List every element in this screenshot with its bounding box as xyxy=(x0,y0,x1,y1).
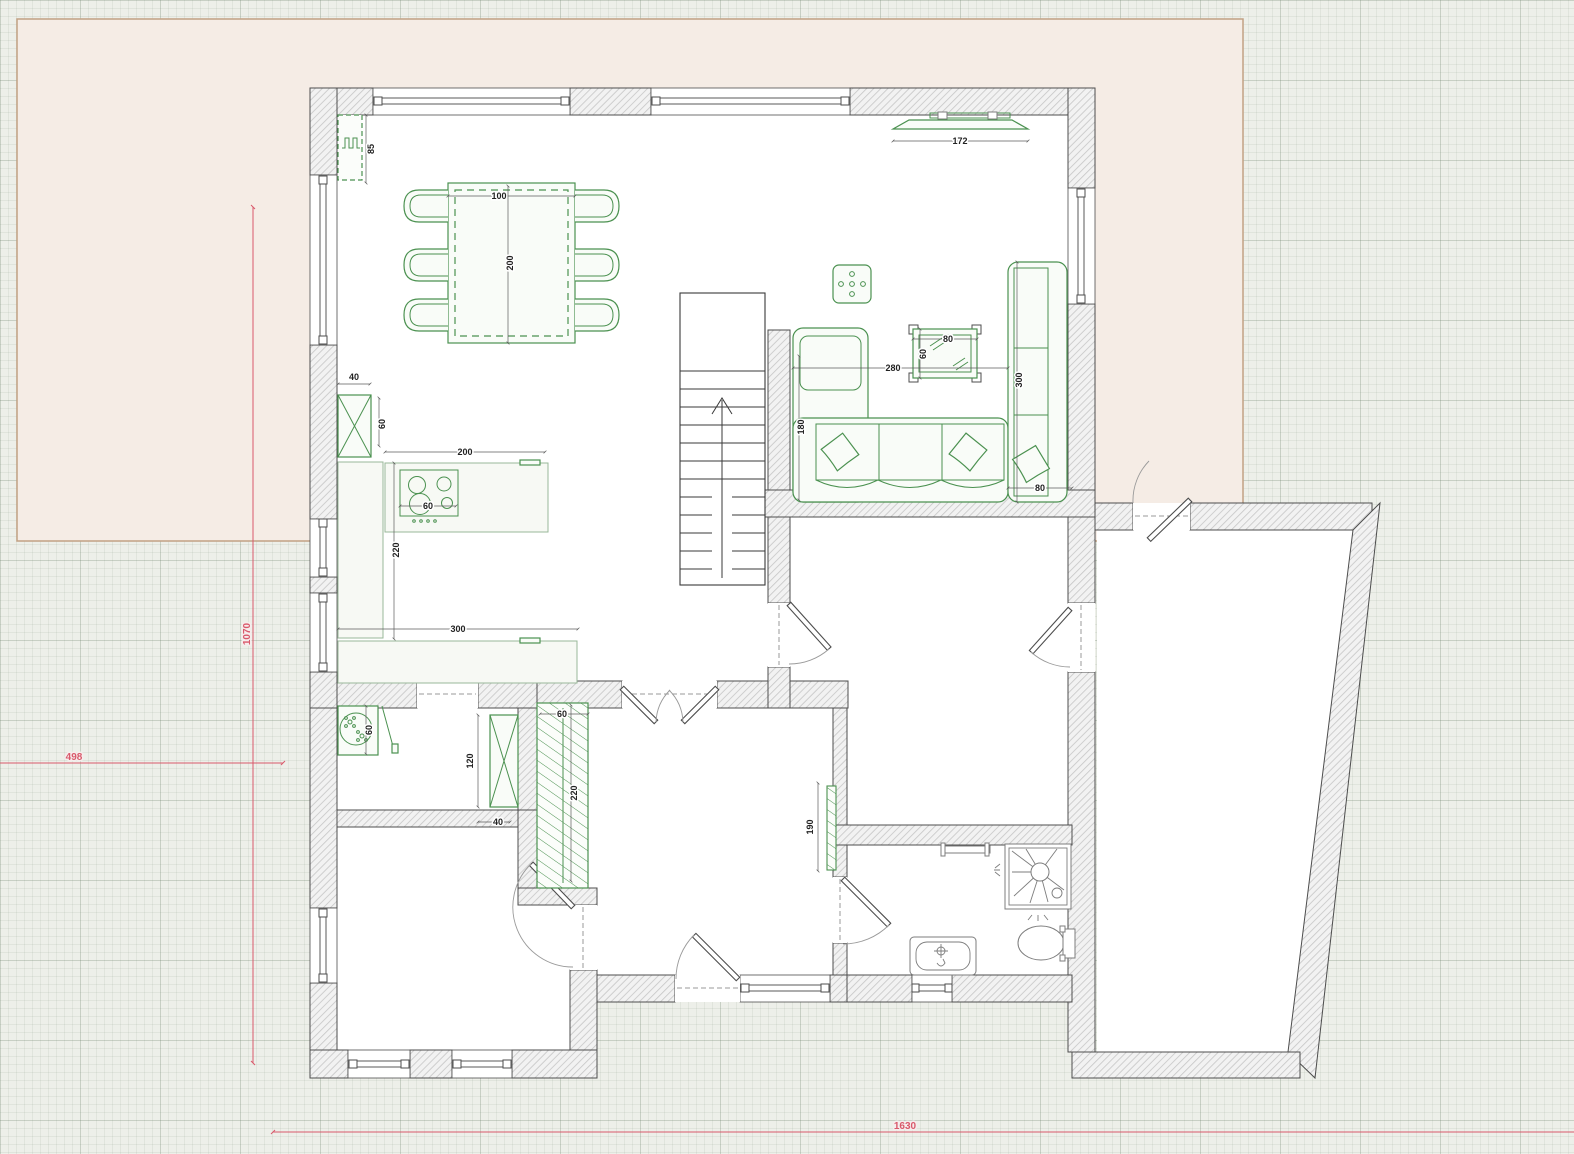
dim-sofa-width: 280 xyxy=(885,363,900,373)
dim-coffee-table-w: 80 xyxy=(943,334,953,344)
dim-utility-cabinet: 120 xyxy=(465,753,475,768)
dining-chair xyxy=(575,249,619,281)
dining-chair xyxy=(404,249,448,281)
dining-chair xyxy=(404,299,448,331)
dim-wardrobe-w: 60 xyxy=(557,709,567,719)
dim-hall-radiator: 190 xyxy=(805,819,815,834)
window xyxy=(740,975,830,1002)
window xyxy=(310,908,337,983)
hall-radiator xyxy=(827,786,836,870)
pouf xyxy=(833,265,871,303)
dim-table-width: 100 xyxy=(491,191,506,201)
dim-sofa-right: 300 xyxy=(1014,372,1024,387)
window xyxy=(373,88,570,115)
dim-kitchen-counter2: 300 xyxy=(450,624,465,634)
kitchen-tall-cabinet xyxy=(338,395,371,457)
window xyxy=(310,175,337,345)
dim-radiator: 85 xyxy=(366,144,376,154)
kitchen-island xyxy=(385,460,548,532)
dim-kitchen-cabinet-d: 60 xyxy=(377,419,387,429)
dining-chair xyxy=(404,190,448,222)
dim-table-length: 200 xyxy=(505,255,515,270)
dim-tv: 172 xyxy=(952,136,967,146)
office-room-floor xyxy=(790,517,1068,825)
dining-chair xyxy=(575,299,619,331)
kitchen-pass-opening xyxy=(417,681,478,708)
dim-kitchen-counter: 200 xyxy=(457,447,472,457)
window xyxy=(310,519,337,577)
dim-hob: 60 xyxy=(423,501,433,511)
utility-cabinet xyxy=(490,715,518,807)
dim-sofa-right-d: 80 xyxy=(1035,483,1045,493)
floor-plan-canvas: 85 100 200 172 40 60 200 60 220 300 280 … xyxy=(0,0,1574,1154)
dining-chair xyxy=(575,190,619,222)
site-dim-width: 498 xyxy=(66,752,83,763)
toilet xyxy=(1018,926,1075,961)
window xyxy=(1068,188,1095,304)
staircase[interactable] xyxy=(680,293,765,585)
dim-coffee-table-d: 60 xyxy=(918,349,928,359)
site-dim-length: 1630 xyxy=(894,1121,917,1132)
site-dim-height: 1070 xyxy=(242,622,253,645)
window xyxy=(651,88,850,115)
dim-kitchen-run: 220 xyxy=(391,542,401,557)
shower xyxy=(994,844,1071,921)
window xyxy=(452,1050,512,1078)
dim-wardrobe-l: 220 xyxy=(569,785,579,800)
window xyxy=(348,1050,410,1078)
window xyxy=(310,593,337,672)
window xyxy=(912,975,952,1002)
floor-plan-drawing: 85 100 200 172 40 60 200 60 220 300 280 … xyxy=(0,0,1574,1154)
dim-sofa-left: 180 xyxy=(796,419,806,434)
washbasin xyxy=(910,937,976,975)
wardrobe xyxy=(537,703,588,888)
dim-washer: 60 xyxy=(364,725,374,735)
dim-kitchen-cabinet-w: 40 xyxy=(349,372,359,382)
dim-utility-gap: 40 xyxy=(493,817,503,827)
kitchen-counter-bottom xyxy=(338,638,577,683)
radiator xyxy=(338,115,362,180)
